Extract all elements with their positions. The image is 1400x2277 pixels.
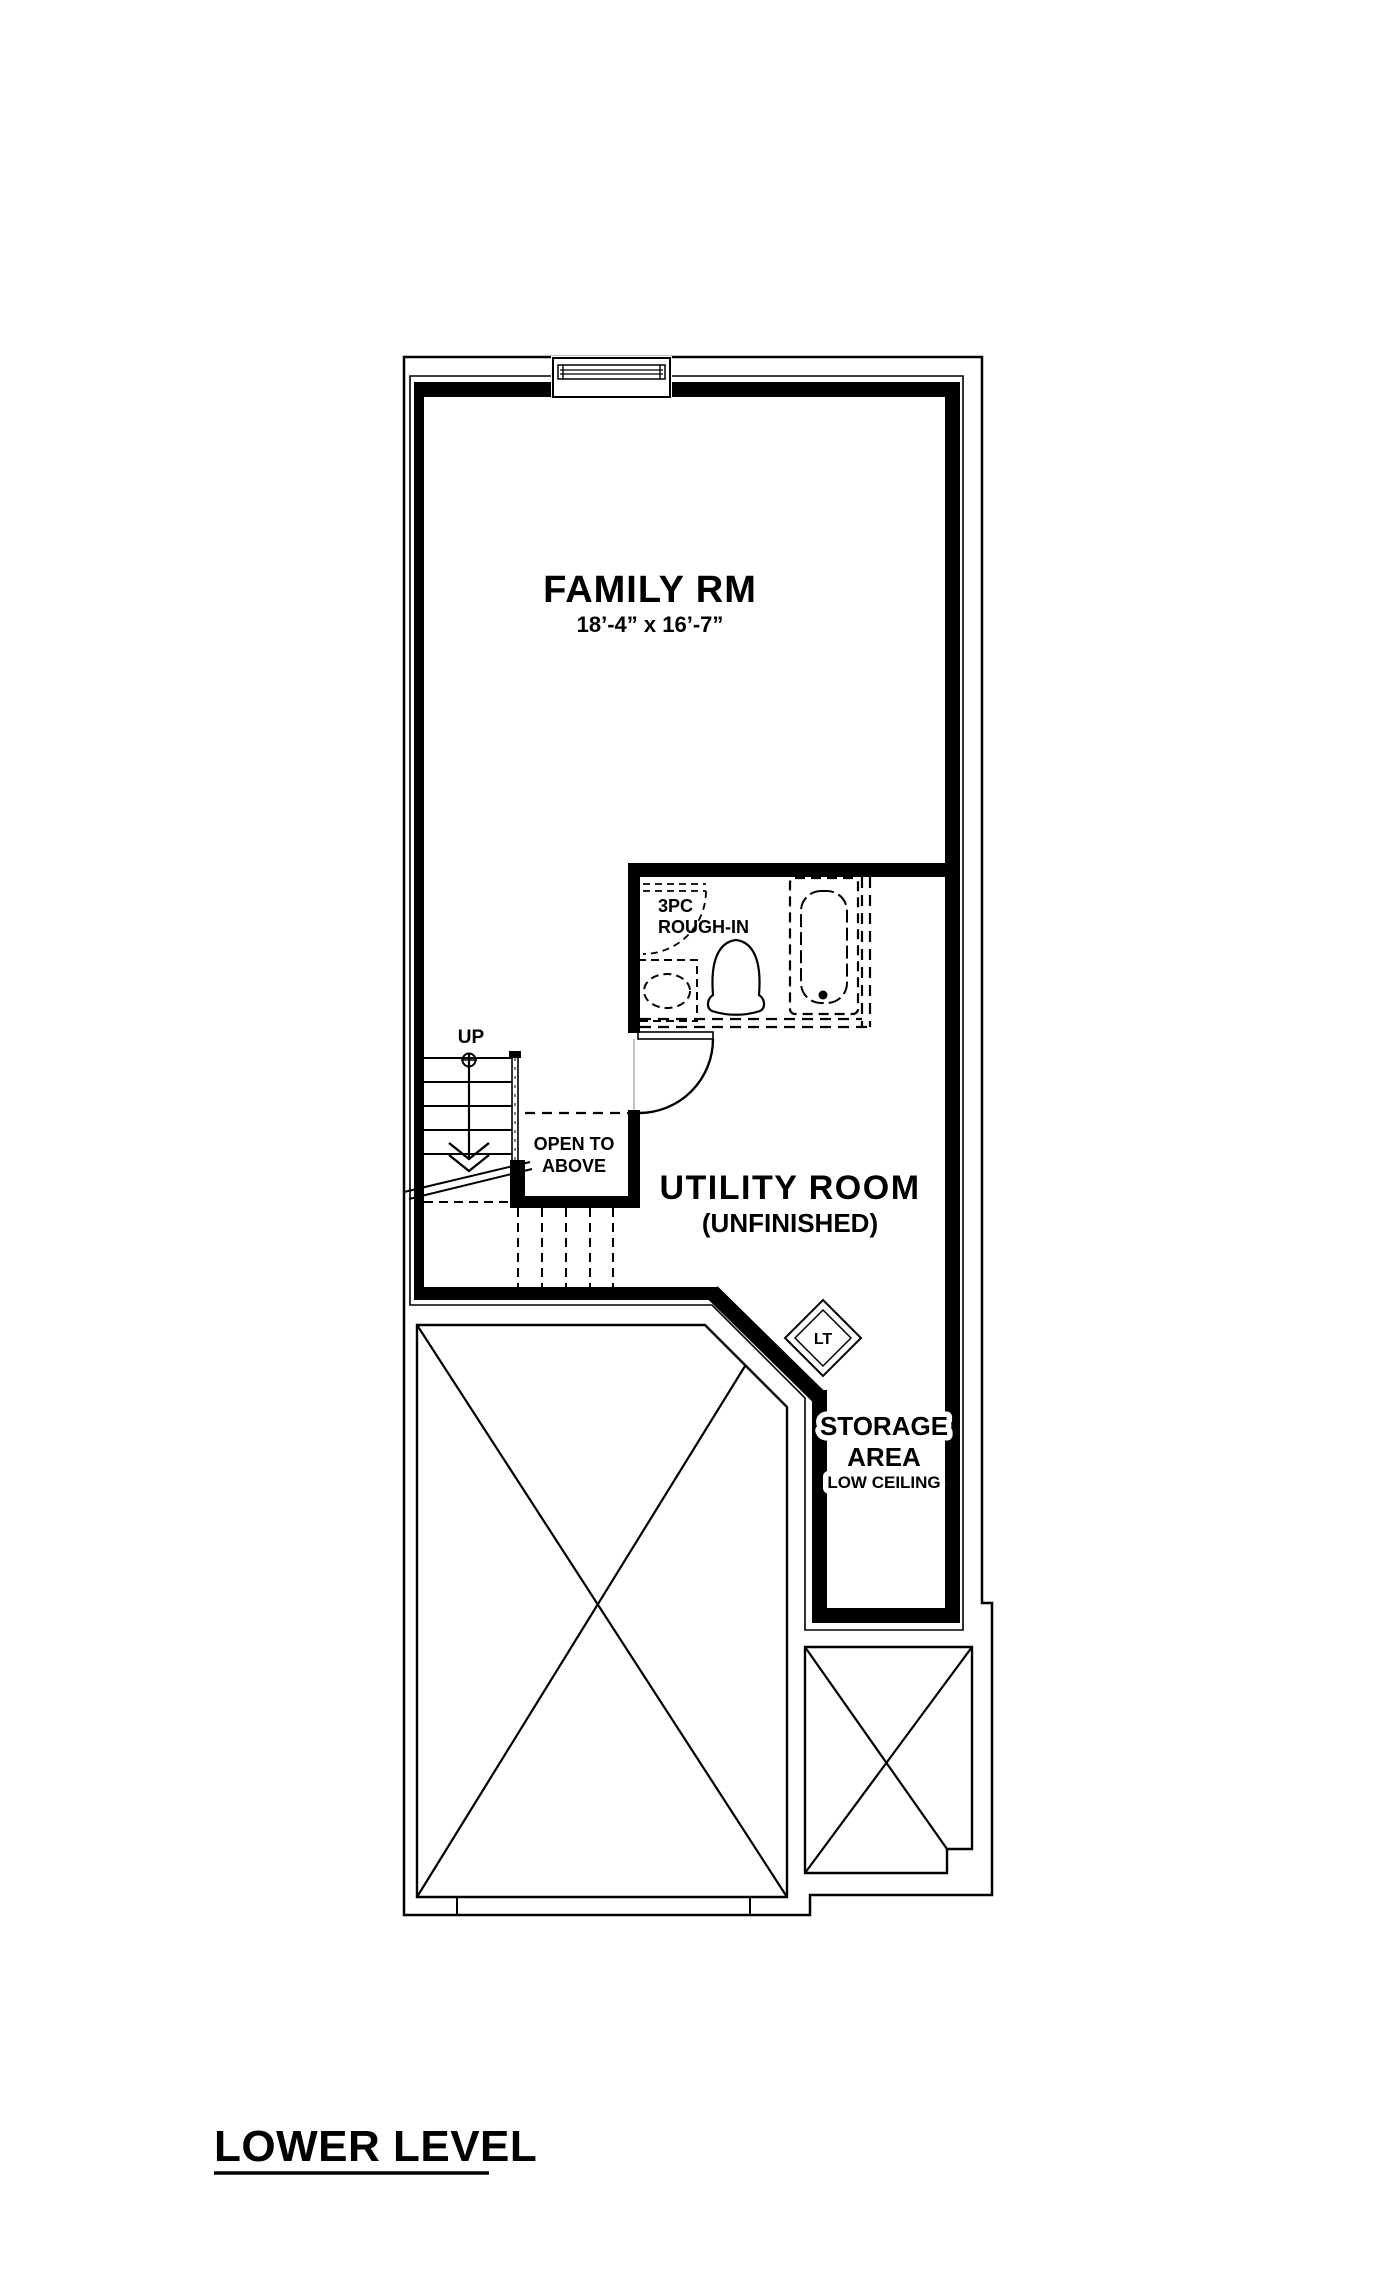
open-to-above-label-line2: ABOVE	[542, 1156, 606, 1176]
bathroom-top-wall	[628, 863, 945, 877]
porch-slab-area	[805, 1647, 972, 1873]
top-wall-left-segment	[414, 382, 553, 397]
page-title: LOWER LEVEL	[214, 2122, 537, 2171]
utility-room-status: (UNFINISHED)	[702, 1208, 878, 1238]
storage-bottom-wall	[812, 1608, 960, 1623]
laundry-tub-label: LT	[814, 1331, 833, 1348]
floor-plan-page: FAMILY RM 18’-4” x 16’-7” 3PC ROUGH-IN U…	[0, 0, 1400, 2277]
window-mask	[551, 356, 672, 398]
left-wall	[414, 382, 424, 1300]
bath-rough-in-label-line1: 3PC	[658, 896, 693, 916]
stairs-up-label: UP	[458, 1027, 485, 1048]
top-wall-right-segment	[670, 382, 960, 397]
x-diagonal	[417, 1366, 745, 1897]
storage-label-line1: STORAGE	[820, 1411, 948, 1441]
vanity-sink	[638, 960, 697, 1021]
family-room-label: FAMILY RM	[543, 569, 757, 611]
utility-room-label: UTILITY ROOM	[659, 1169, 920, 1207]
open-to-above-label-line1: OPEN TO	[534, 1134, 615, 1154]
bathtub-basin	[801, 891, 847, 1003]
family-room-dimensions: 18’-4” x 16’-7”	[577, 612, 724, 637]
bathroom-left-wall	[628, 863, 640, 1033]
vanity-outline	[638, 960, 697, 1021]
door-leaf	[638, 1032, 713, 1039]
utility-door	[634, 1032, 713, 1113]
bathtub-drain	[819, 991, 828, 1000]
bathtub	[790, 878, 858, 1014]
x-diagonal	[805, 1647, 947, 1849]
garage-slab-area	[417, 1325, 787, 1915]
floor-plan-drawing: FAMILY RM 18’-4” x 16’-7” 3PC ROUGH-IN U…	[0, 0, 1400, 2277]
basement-window	[551, 356, 672, 398]
x-diagonal	[417, 1325, 787, 1897]
stairwell-right-wall	[628, 1110, 640, 1208]
handrail-newel	[509, 1051, 521, 1058]
bath-rough-in-label-line2: ROUGH-IN	[658, 917, 749, 937]
sink-bowl	[644, 974, 690, 1008]
storage-low-ceiling-note: LOW CEILING	[827, 1473, 940, 1492]
garage-top-wall	[414, 1287, 717, 1300]
storage-label-line2: AREA	[847, 1442, 921, 1472]
stairwell-bottom-wall	[510, 1196, 640, 1208]
toilet	[708, 940, 764, 1015]
door-swing-arc	[639, 1039, 713, 1113]
